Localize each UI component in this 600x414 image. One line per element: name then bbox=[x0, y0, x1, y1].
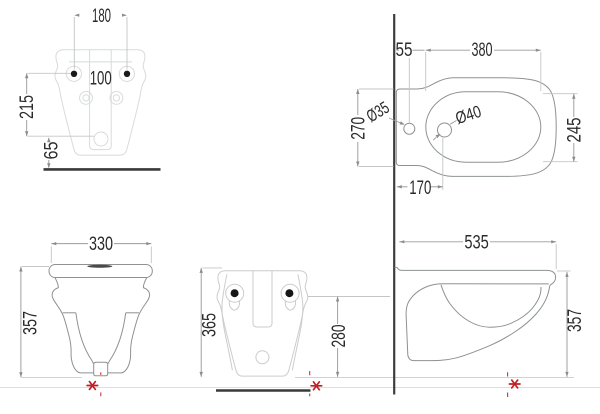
svg-text:180: 180 bbox=[92, 6, 111, 27]
svg-text:357: 357 bbox=[20, 311, 41, 335]
svg-text:357: 357 bbox=[565, 309, 586, 332]
svg-text:380: 380 bbox=[472, 40, 493, 61]
svg-text:330: 330 bbox=[89, 234, 113, 255]
svg-text:270: 270 bbox=[348, 117, 369, 140]
svg-text:215: 215 bbox=[17, 95, 38, 119]
svg-text:245: 245 bbox=[564, 118, 585, 143]
svg-text:280: 280 bbox=[329, 325, 350, 348]
svg-text:365: 365 bbox=[199, 313, 220, 337]
svg-text:55: 55 bbox=[396, 40, 413, 61]
svg-text:170: 170 bbox=[409, 178, 431, 199]
svg-text:100: 100 bbox=[90, 69, 112, 90]
svg-text:65: 65 bbox=[41, 142, 62, 160]
svg-text:535: 535 bbox=[464, 232, 489, 253]
